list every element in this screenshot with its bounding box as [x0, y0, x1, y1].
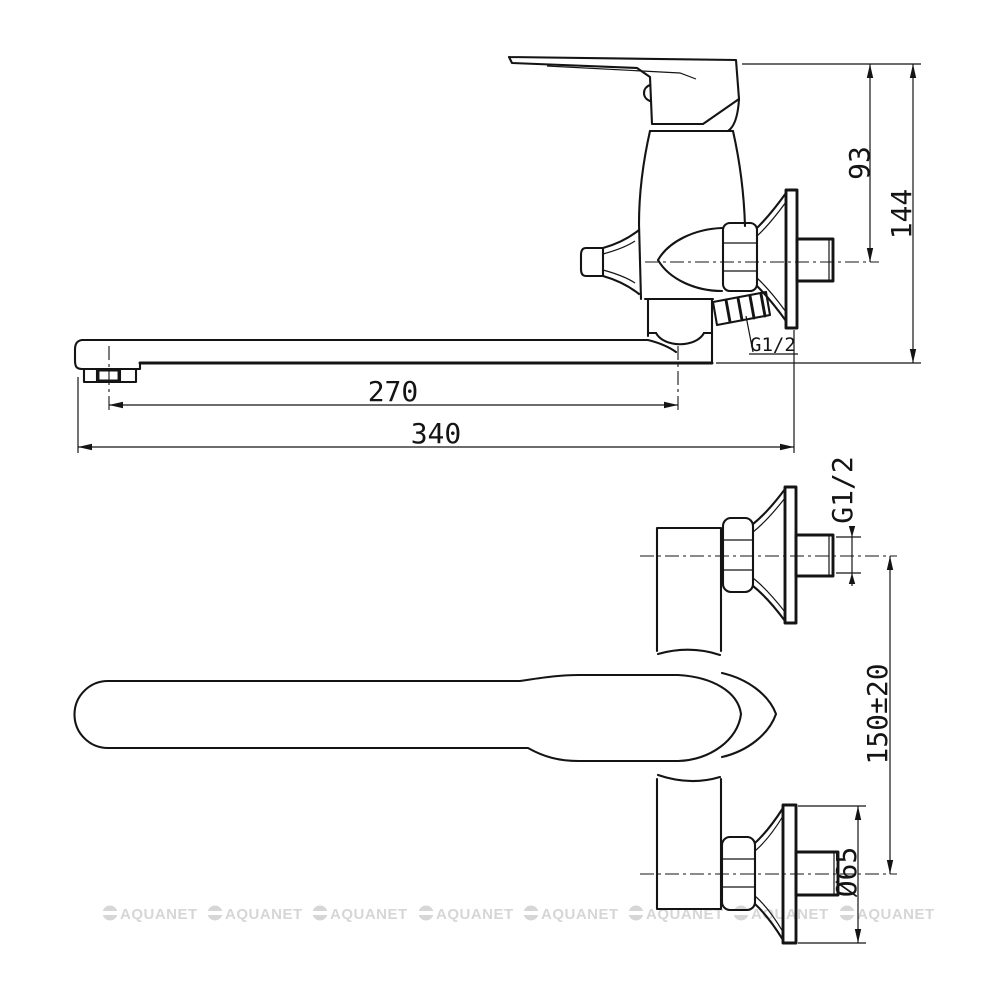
watermark-text: AQUANET	[751, 906, 829, 923]
arrow-down-icon	[855, 929, 861, 943]
watermark-item: AQUANET	[733, 906, 829, 924]
dim-label-150: 150±20	[861, 663, 894, 764]
watermark-text: AQUANET	[120, 906, 198, 923]
dim-label-65: Ø65	[830, 847, 863, 898]
arrow-right-icon	[664, 402, 678, 408]
diverter-knob-tip	[581, 248, 603, 276]
handle-lever-plan	[75, 675, 742, 761]
watermark-item: AQUANET	[312, 906, 408, 924]
watermark-item: AQUANET	[523, 906, 619, 924]
arrow-up-icon	[887, 556, 893, 570]
watermark-item: AQUANET	[102, 906, 198, 924]
watermark-item: AQUANET	[839, 906, 935, 924]
arrow-down-icon	[849, 526, 855, 537]
watermark-item: AQUANET	[418, 906, 514, 924]
wall-flange	[786, 190, 797, 328]
arrow-up-icon	[849, 573, 855, 584]
aquanet-logo-slit	[418, 911, 434, 915]
dim-label-144: 144	[885, 189, 918, 240]
upper-mount-nut-facets	[723, 540, 753, 570]
mount-nut-facets	[723, 243, 757, 271]
watermark-item: AQUANET	[207, 906, 303, 924]
diverter-knob-flares	[603, 230, 639, 294]
handle-pivot-bump	[644, 85, 650, 101]
upper-wall-flange	[785, 487, 796, 623]
arrow-right-icon	[780, 444, 794, 450]
plan-view: G1/2 150±20 Ø65	[75, 456, 898, 943]
inlet-nipple	[797, 239, 833, 281]
arrow-left-icon	[78, 444, 92, 450]
spout-outlet-nozzle-arc	[656, 333, 704, 344]
watermark-text: AQUANET	[857, 906, 935, 923]
spout-outlet-housing	[645, 299, 713, 362]
arrow-down-icon	[867, 248, 873, 262]
upper-mount-cone	[753, 489, 785, 621]
arrow-up-icon	[910, 64, 916, 78]
dim-label-340: 340	[411, 417, 462, 450]
spout-left-cap	[75, 340, 140, 369]
arrow-up-icon	[855, 806, 861, 820]
technical-drawing-page: AQUANET AQUANET AQUANET AQUANET AQUANET …	[0, 0, 1000, 1000]
dim-label-270: 270	[368, 375, 419, 408]
arrow-left-icon	[109, 402, 123, 408]
aquanet-logo-slit	[207, 911, 223, 915]
watermark-text: AQUANET	[225, 906, 303, 923]
aquanet-logo-slit	[628, 911, 644, 915]
plan-view-dimensions: G1/2 150±20 Ø65	[798, 456, 894, 943]
aquanet-logo-slit	[839, 911, 855, 915]
thread-label-side: G1/2	[750, 334, 796, 356]
lower-mount-nut-facets	[722, 859, 755, 887]
aquanet-logo-slit	[102, 911, 118, 915]
watermark-text: AQUANET	[541, 906, 619, 923]
spout-top-edge	[82, 340, 676, 352]
upper-mount-cone-inner	[753, 498, 785, 612]
dim-ext-thread	[836, 537, 861, 573]
arrow-up-icon	[867, 64, 873, 78]
aquanet-logo-slit	[523, 911, 539, 915]
body-right-edge	[733, 131, 745, 226]
cartridge-bullet	[658, 228, 722, 291]
watermark-text: AQUANET	[436, 906, 514, 923]
dim-label-93: 93	[843, 146, 876, 180]
aquanet-logo-slit	[733, 911, 749, 915]
watermark-row: AQUANET AQUANET AQUANET AQUANET AQUANET …	[102, 906, 935, 924]
watermark-text: AQUANET	[330, 906, 408, 923]
arrow-down-icon	[910, 349, 916, 363]
upper-mount-nut	[723, 518, 753, 592]
aquanet-logo-slit	[312, 911, 328, 915]
handle-saddle-bottom	[658, 775, 720, 781]
handle-lever-outline	[509, 57, 739, 124]
body-left-edge	[639, 131, 650, 299]
side-view-dimensions: 270 340 93 144 G1/2	[78, 64, 921, 453]
side-view: 270 340 93 144 G1/2	[75, 57, 921, 453]
arrow-down-icon	[887, 860, 893, 874]
handle-saddle-top	[658, 650, 720, 655]
faucet-technical-drawing: AQUANET AQUANET AQUANET AQUANET AQUANET …	[0, 0, 1000, 1000]
thread-label-plan: G1/2	[826, 456, 859, 523]
mount-nut	[723, 223, 757, 291]
